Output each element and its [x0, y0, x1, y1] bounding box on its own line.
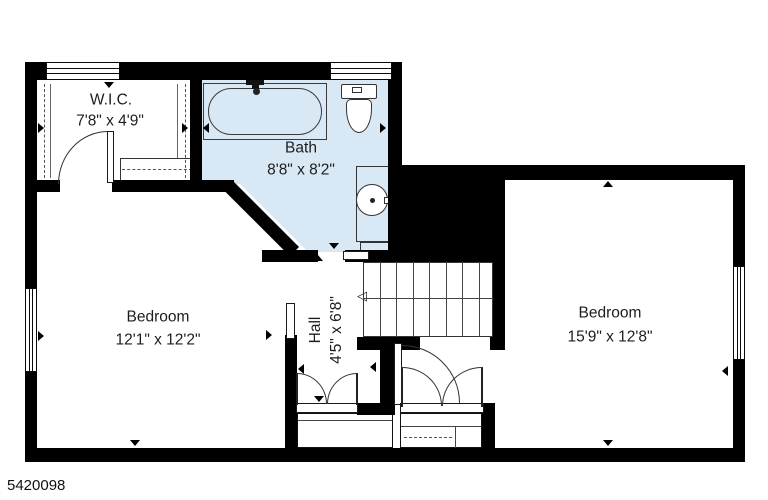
floor-plan: ◁ W.I.C. 7'8" x 4'9" Bath 8'8	[0, 0, 768, 500]
wic-door-arc	[58, 131, 108, 184]
bedroom-closet-rod-dashed	[404, 437, 452, 438]
dimension-arrow	[329, 243, 339, 249]
dimension-arrow	[370, 362, 376, 372]
bedroom-closet-divider	[455, 426, 456, 448]
dimension-arrow	[603, 440, 613, 446]
wic-rod-dashed-left	[44, 84, 45, 178]
wall-bath-bottom-right	[345, 250, 505, 262]
window-bedroom-right	[733, 266, 745, 360]
listing-id: 5420098	[7, 477, 65, 494]
wall-wic-bottom-left	[25, 180, 60, 192]
hall-dims: 4'5" x 6'8"	[327, 296, 348, 364]
toilet-flush-button	[352, 87, 362, 93]
stair-tread	[396, 262, 397, 337]
stair-tread	[446, 262, 447, 337]
dimension-arrow	[314, 396, 324, 402]
tub-drain-icon	[253, 88, 260, 95]
room-dims-bedroom-right: 15'9" x 12'8"	[567, 328, 652, 349]
room-label-bedroom-right: Bedroom	[579, 304, 642, 325]
wall-bottom	[25, 448, 745, 462]
bedroom-closet-shelf-line	[401, 426, 481, 427]
dimension-arrow	[203, 123, 209, 133]
dimension-arrow	[722, 366, 728, 376]
wall-left	[25, 62, 37, 462]
room-label-bedroom-left: Bedroom	[127, 308, 190, 329]
wic-shelf	[120, 158, 194, 182]
dimension-arrow	[380, 123, 386, 133]
dimension-arrow	[130, 185, 140, 191]
wic-rod-line-right	[177, 84, 178, 158]
stair-tread	[413, 262, 414, 337]
room-dims-wic: 7'8" x 4'9"	[76, 112, 144, 133]
dimension-arrow	[266, 330, 272, 340]
stair-midline	[363, 298, 493, 299]
window-wic	[46, 62, 120, 80]
stair-tread	[462, 262, 463, 337]
wall-closet-stub	[357, 403, 395, 415]
stair-tread	[380, 262, 381, 337]
sink-drain-icon	[370, 198, 375, 203]
dimension-arrow	[182, 123, 188, 133]
hall-closet	[297, 413, 393, 448]
wic-shelf-dashed-line	[122, 169, 192, 170]
wall-hall-right	[380, 347, 394, 405]
bedroom-left-door-leaf	[286, 303, 295, 339]
stairs	[363, 262, 493, 337]
dimension-arrow	[298, 364, 304, 374]
wic-door-leaf	[107, 131, 114, 183]
wall-wic-right	[190, 62, 202, 185]
dimension-arrow	[313, 255, 323, 261]
dimension-arrow	[104, 82, 114, 88]
stair-direction-arrow-icon: ◁	[357, 289, 367, 304]
hall-closet-sill	[296, 403, 358, 413]
room-dims-bath: 8'8" x 8'2"	[267, 161, 335, 182]
wall-core-mass	[388, 165, 505, 260]
stair-tread	[479, 262, 480, 337]
dimension-arrow	[603, 181, 613, 187]
wall-under-stairs-corner	[490, 337, 505, 350]
stair-tread	[429, 262, 430, 337]
wall-stairs-right	[493, 260, 505, 338]
hall-name: Hall	[306, 296, 327, 364]
bathtub	[208, 88, 322, 135]
room-dims-bedroom-left: 12'1" x 12'2"	[115, 331, 200, 352]
room-label-hall: Hall 4'5" x 6'8"	[306, 296, 348, 364]
room-label-wic: W.I.C.	[90, 91, 132, 112]
dimension-arrow	[38, 123, 44, 133]
wall-bath-bottom-left	[262, 250, 318, 262]
hall-closet-shelf-line	[298, 420, 392, 421]
window-bedroom-left	[25, 288, 37, 372]
dimension-arrow	[38, 331, 44, 341]
bedroom-closet	[400, 413, 482, 448]
window-bath	[330, 62, 392, 80]
hall-closet-door-arc-right	[327, 373, 357, 404]
dimension-arrow	[130, 440, 140, 446]
room-label-bath: Bath	[285, 139, 317, 160]
bath-door-leaf	[343, 251, 369, 260]
wic-rod-line-left	[50, 84, 51, 178]
